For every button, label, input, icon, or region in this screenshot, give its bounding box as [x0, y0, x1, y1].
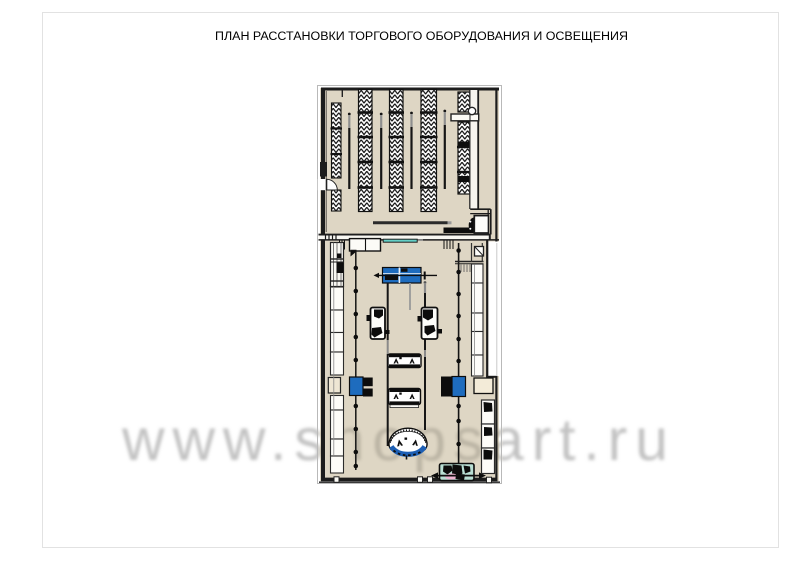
- svg-text:ПЛАН РАССТАНОВКИ ТОРГОВОГО ОБО: ПЛАН РАССТАНОВКИ ТОРГОВОГО ОБОРУДОВАНИЯ …: [215, 29, 628, 43]
